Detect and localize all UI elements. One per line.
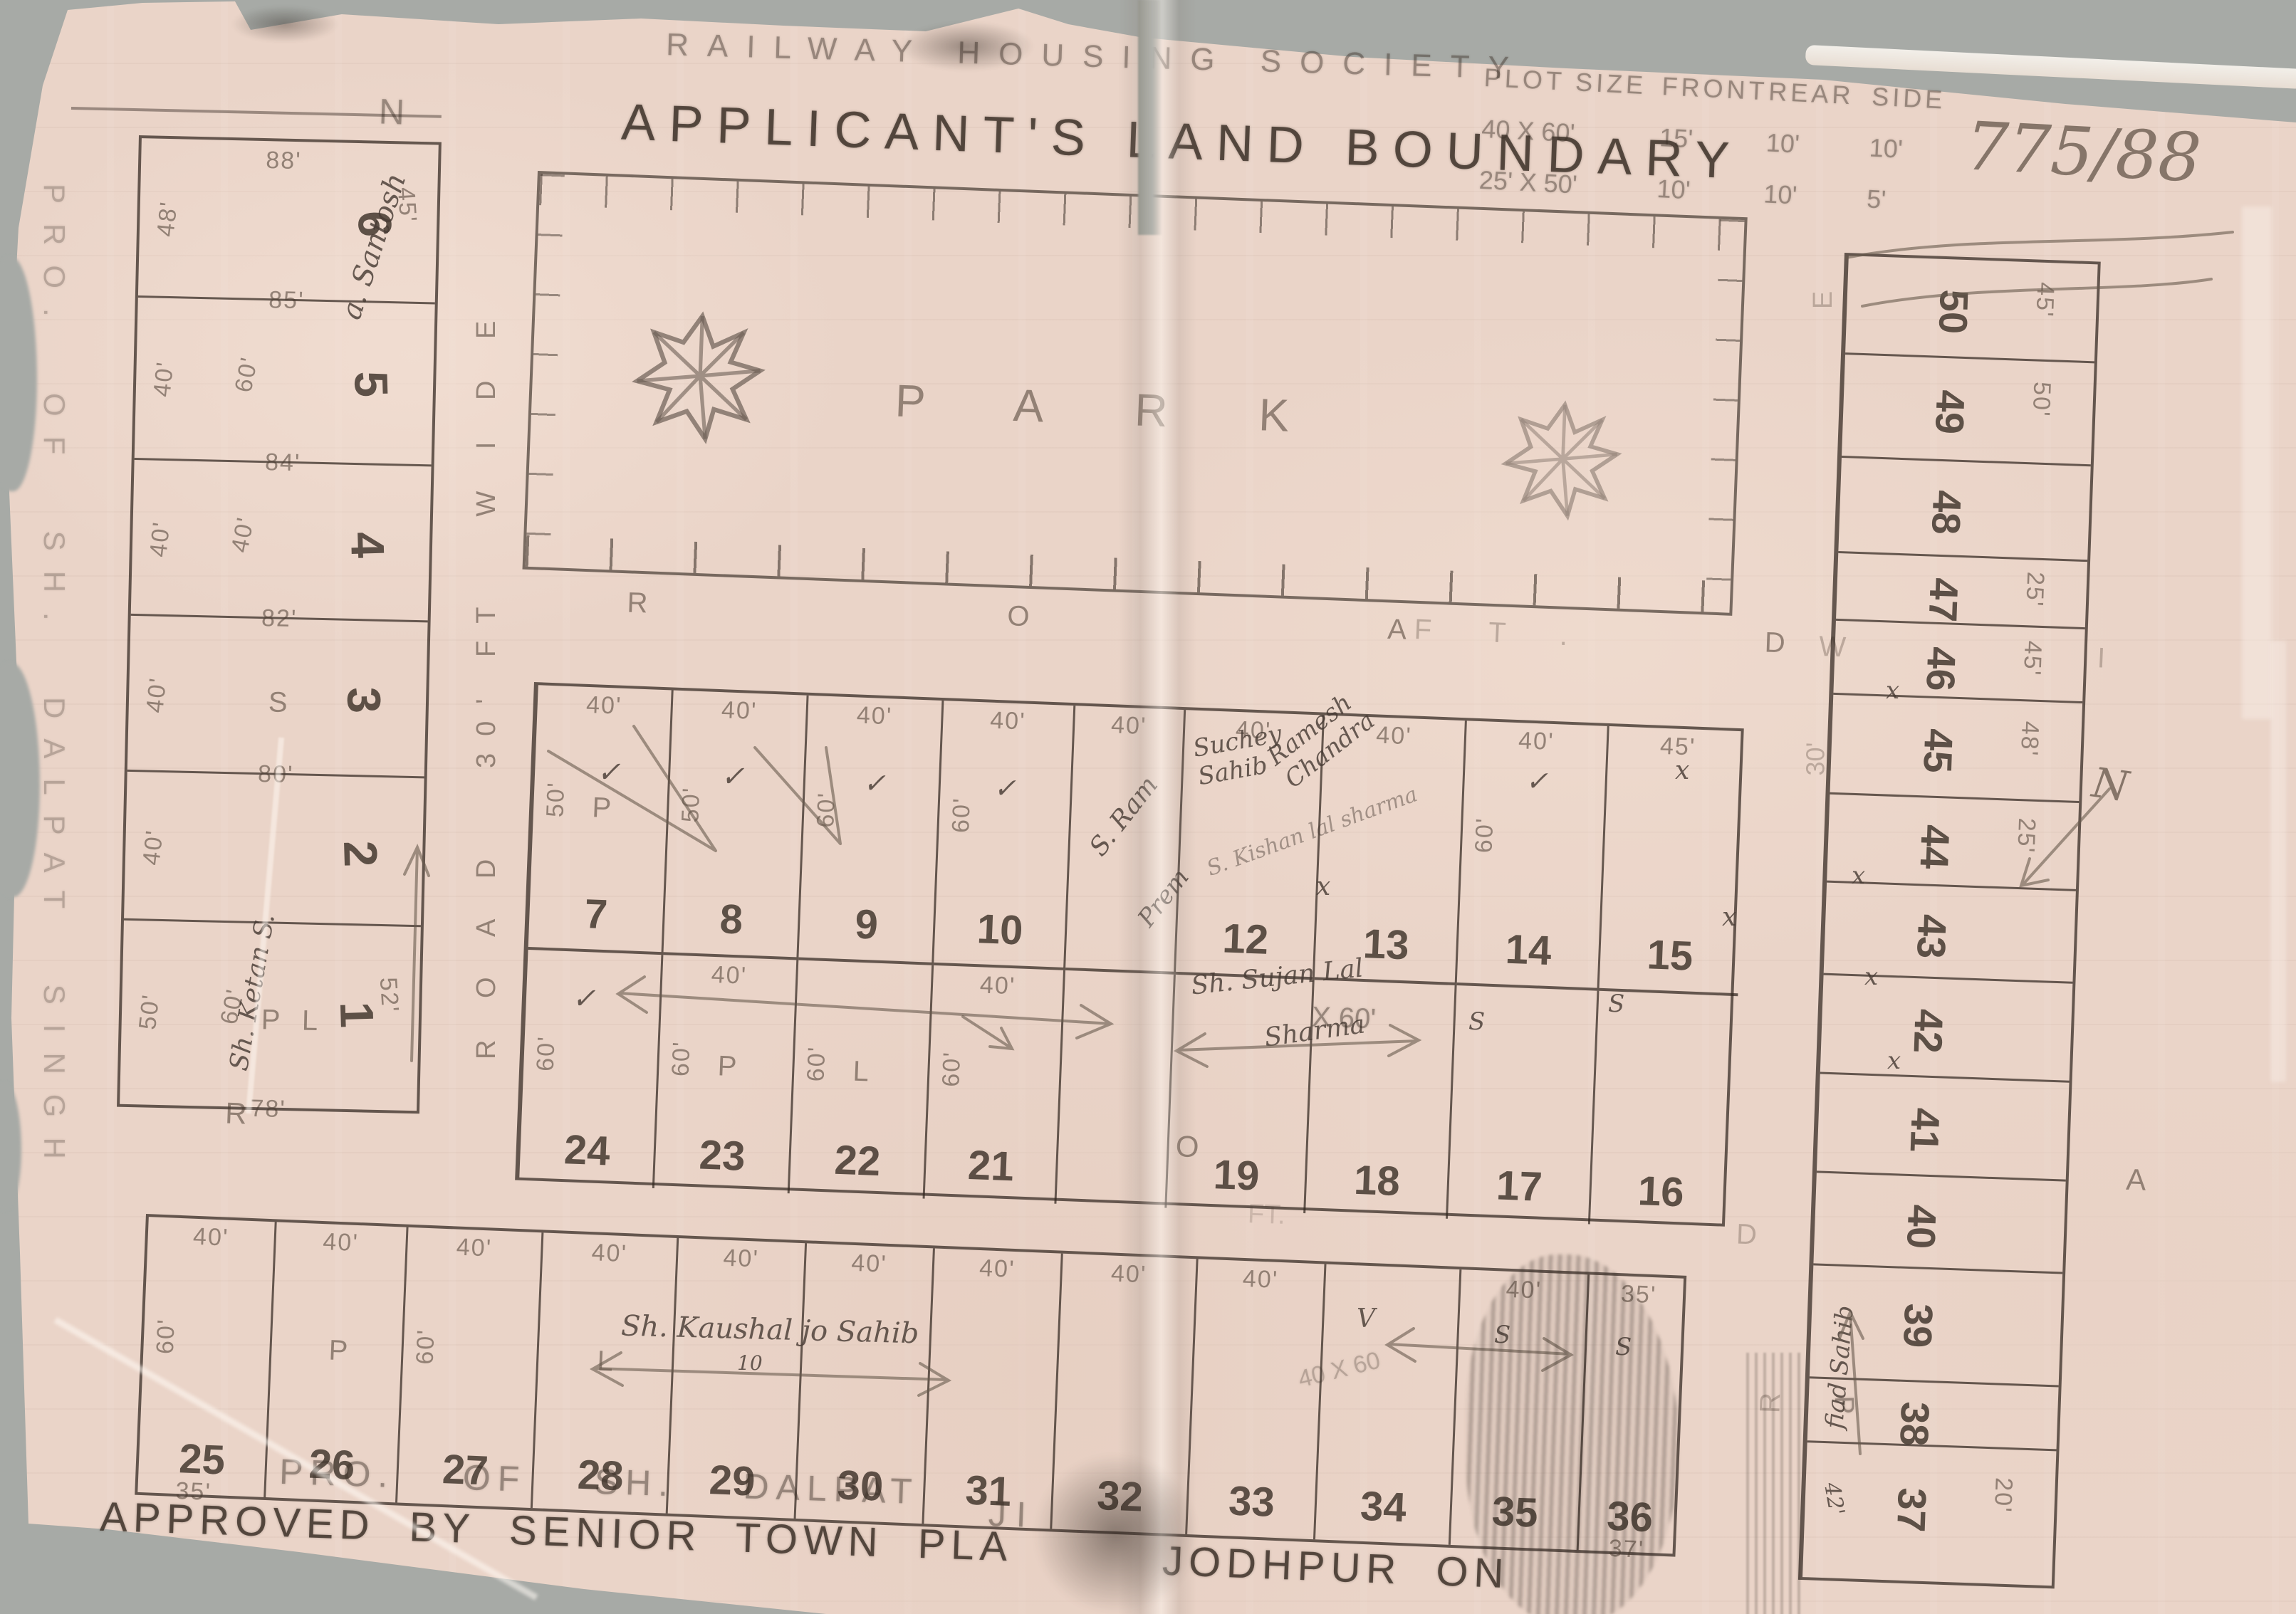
plan-layer: RAILWAY HOUSING SOCIETY APPLICANT'S LAND… — [0, 0, 2296, 1614]
scanned-plan-canvas: RAILWAY HOUSING SOCIETY APPLICANT'S LAND… — [0, 0, 2296, 1614]
pencil-marks-layer — [0, 0, 2296, 1614]
